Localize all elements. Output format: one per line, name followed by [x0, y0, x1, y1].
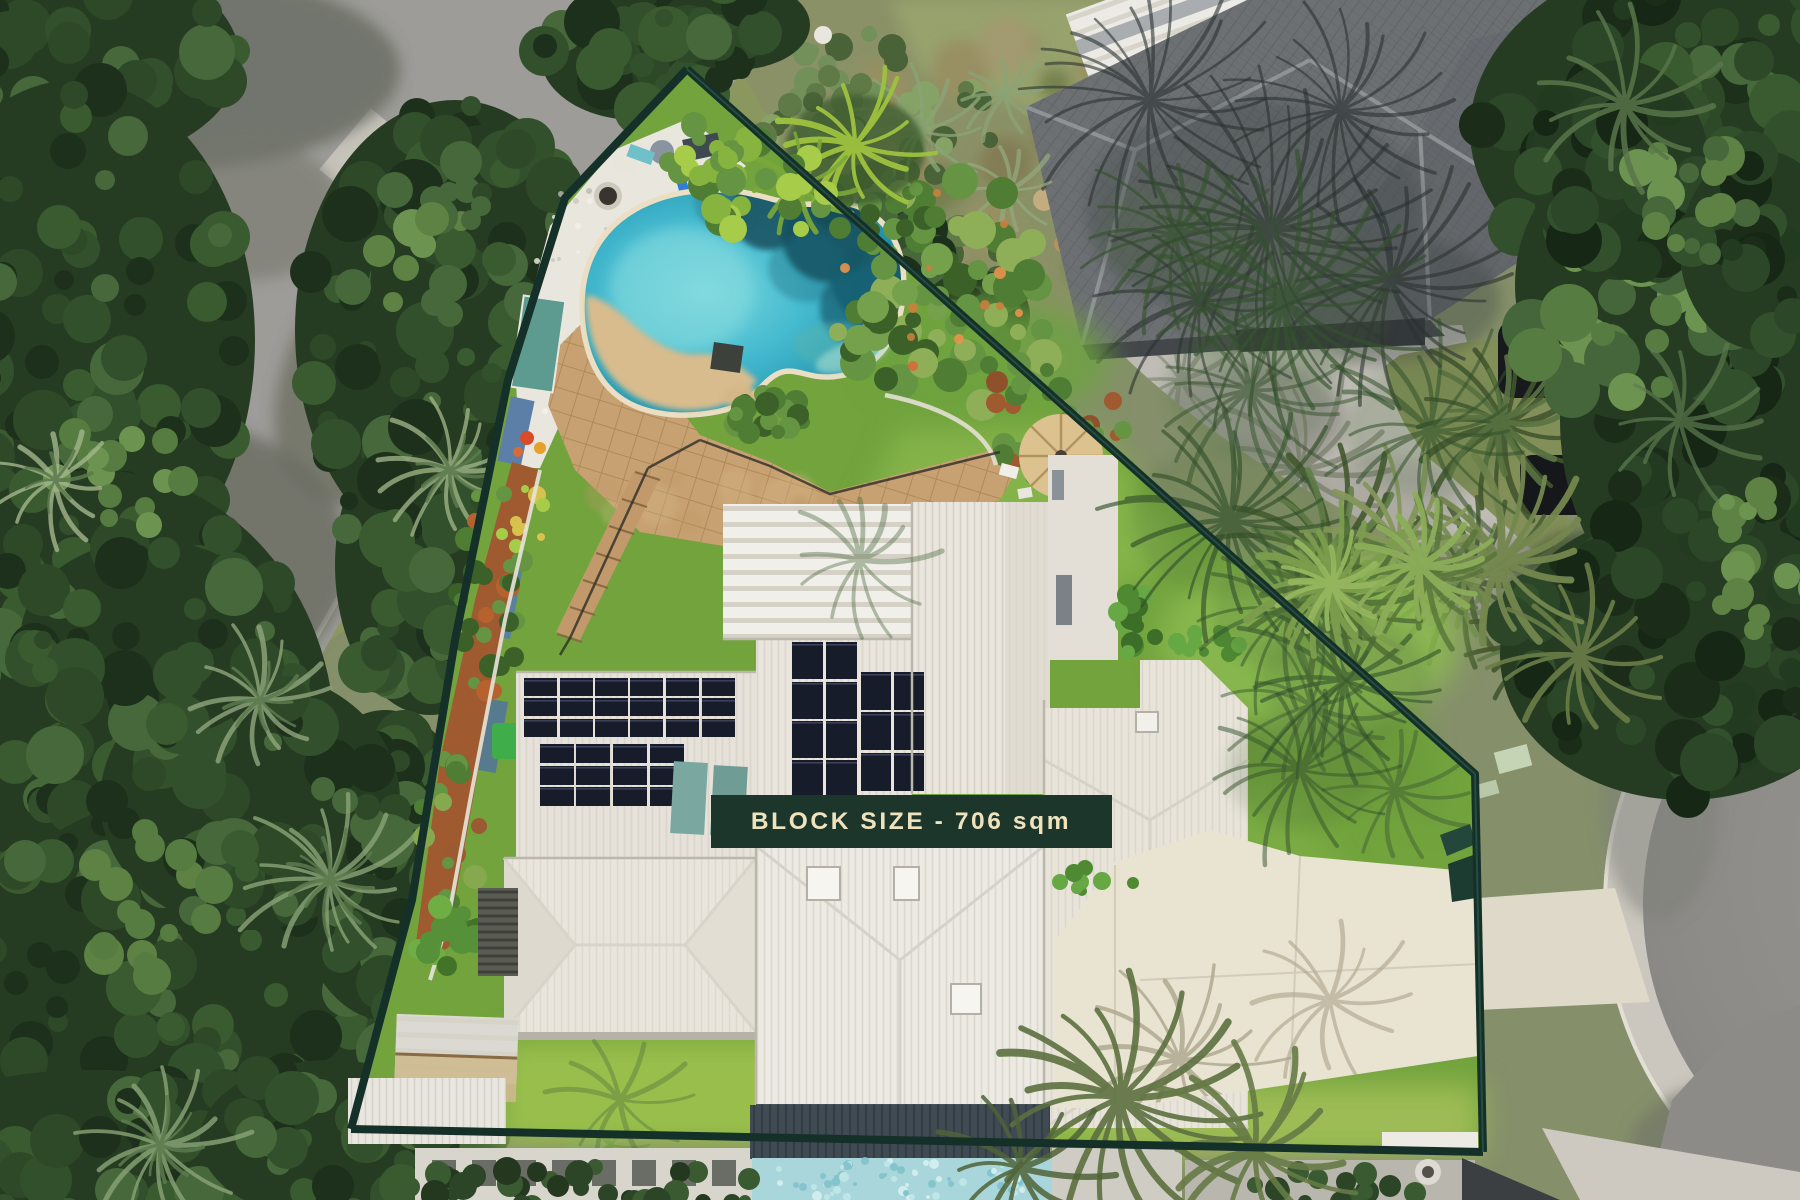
svg-text:BLOCK SIZE - 706 sqm: BLOCK SIZE - 706 sqm: [751, 808, 1071, 835]
